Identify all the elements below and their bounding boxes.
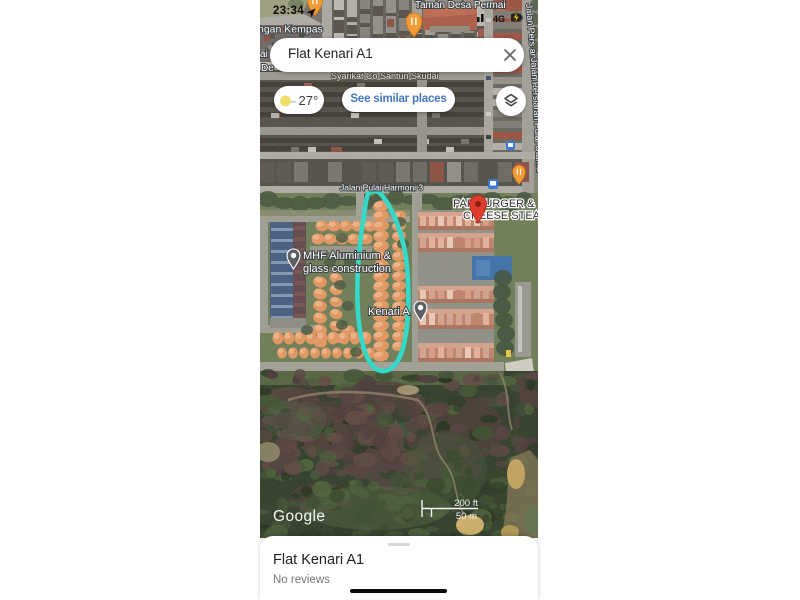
svg-text:glass construction: glass construction <box>303 263 391 275</box>
svg-text:Google: Google <box>273 508 325 525</box>
svg-text:Kenari A: Kenari A <box>368 306 410 318</box>
svg-text:Syarikat Co Santun Skudai: Syarikat Co Santun Skudai <box>331 71 439 81</box>
svg-text:ngan Kempas: ngan Kempas <box>260 24 323 36</box>
svg-text:ai: ai <box>260 49 268 60</box>
svg-text:Jalan Pulai Harmoni 3: Jalan Pulai Harmoni 3 <box>340 183 423 193</box>
svg-text:4G: 4G <box>493 14 505 24</box>
svg-text:MHF Aluminium &: MHF Aluminium & <box>303 250 392 262</box>
svg-text:50 m: 50 m <box>456 511 477 522</box>
svg-text:200 ft: 200 ft <box>454 498 478 509</box>
svg-text:PAP BURGER &: PAP BURGER & <box>453 198 535 210</box>
